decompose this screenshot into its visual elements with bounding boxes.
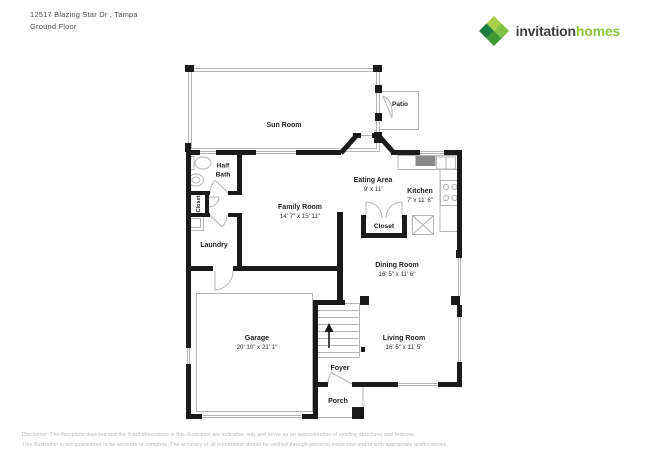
interior-wall [228,191,242,195]
exterior-wall [216,150,256,155]
interior-wall [205,193,209,215]
exterior-wall [186,364,191,419]
garage-door [202,416,302,418]
window [459,317,461,362]
sunroom-inner-wall [192,72,377,149]
stove-burner [443,195,448,200]
exterior-wall [186,150,191,348]
room-label-dining-room: Dining Room 16' 5" x 11' 6" [375,262,419,279]
window [188,348,190,364]
room-label-laundry: Laundry [200,242,228,251]
exterior-wall [352,382,358,387]
porch-post [352,407,364,419]
stove-icon [441,181,460,206]
interior-wall [361,233,407,238]
disclaimer-line-1: Disclaimer: The floorplans depicted and … [22,431,448,441]
window [256,152,296,154]
interior-wall [237,213,242,271]
wall-post [373,65,382,72]
room-label-closet-hall: Closet [374,223,394,232]
exterior-wall [296,150,341,155]
patio-door-arc [383,96,392,118]
bay-angled-walls [341,135,394,153]
wall-post [361,347,365,352]
room-label-patio: Patio [392,101,408,110]
disclaimer: Disclaimer: The floorplans depicted and … [22,431,448,451]
closet-double-door-left-arc [366,202,382,218]
disclaimer-line-2: This illustration is not guaranteed to b… [22,441,448,451]
front-door-arc [328,373,352,385]
window [459,252,461,296]
interior-wall [313,302,318,419]
stove-burner [443,184,448,189]
interior-wall [237,152,242,195]
room-label-living-room: Living Room 16' 5" x 11' 5" [383,335,425,352]
refrigerator-x [413,216,434,235]
stove-burner [452,195,457,200]
exterior-wall [358,382,398,387]
wall-post [456,250,462,258]
hall-door-arc [215,271,233,290]
room-label-eating-area: Eating Area 9' x 11' [354,177,393,194]
interior-wall [233,266,343,271]
bath-sink-basin [192,177,200,183]
room-label-foyer: Foyer [330,365,349,374]
half-bath-door-arc [210,180,228,193]
interior-wall [186,266,213,271]
room-label-family-room: Family Room 14' 7" x 15' 11" [278,204,322,221]
stove-burner [452,184,457,189]
bay-wall-angled [341,135,357,153]
wall-post [375,85,382,93]
closet-door-arc [209,197,219,207]
toilet-bowl-icon [195,157,211,169]
column [451,296,460,305]
bay-wall-angled [379,136,394,153]
room-label-garage: Garage 20' 10" x 21' 1" [237,335,278,352]
exterior-wall [186,414,202,419]
cooktop-icon [416,156,436,166]
staircase [317,304,360,358]
window [200,152,216,154]
interior-wall [186,213,210,217]
room-label-kitchen: Kitchen 7' x 11' 6" [407,188,433,205]
garage-interior-outline [197,294,313,412]
stairs-up-arrow-icon [325,323,334,348]
room-label-closet-left: Closet [195,195,204,212]
laundry-door-arc [210,215,227,227]
utility-sink-basin [191,219,201,228]
room-label-porch: Porch [328,398,348,407]
floorplan-drawing [0,0,650,460]
exterior-wall [457,150,462,252]
window [398,384,438,386]
interior-wall [337,212,343,305]
column [360,296,369,305]
floorplan-page: 12517 Blazing Star Dr , Tampa Ground Flo… [0,0,650,460]
exterior-wall [317,382,328,387]
thin-walls-group [188,69,461,418]
exterior-wall [438,382,462,387]
window [420,152,444,154]
closet-double-door-right-arc [386,202,402,218]
exterior-wall [457,305,462,317]
room-label-sun-room: Sun Room [267,122,302,131]
wall-post [185,65,194,72]
exterior-wall [391,150,420,155]
room-label-half-bath: Half Bath [216,163,231,180]
wall-post [375,113,382,121]
